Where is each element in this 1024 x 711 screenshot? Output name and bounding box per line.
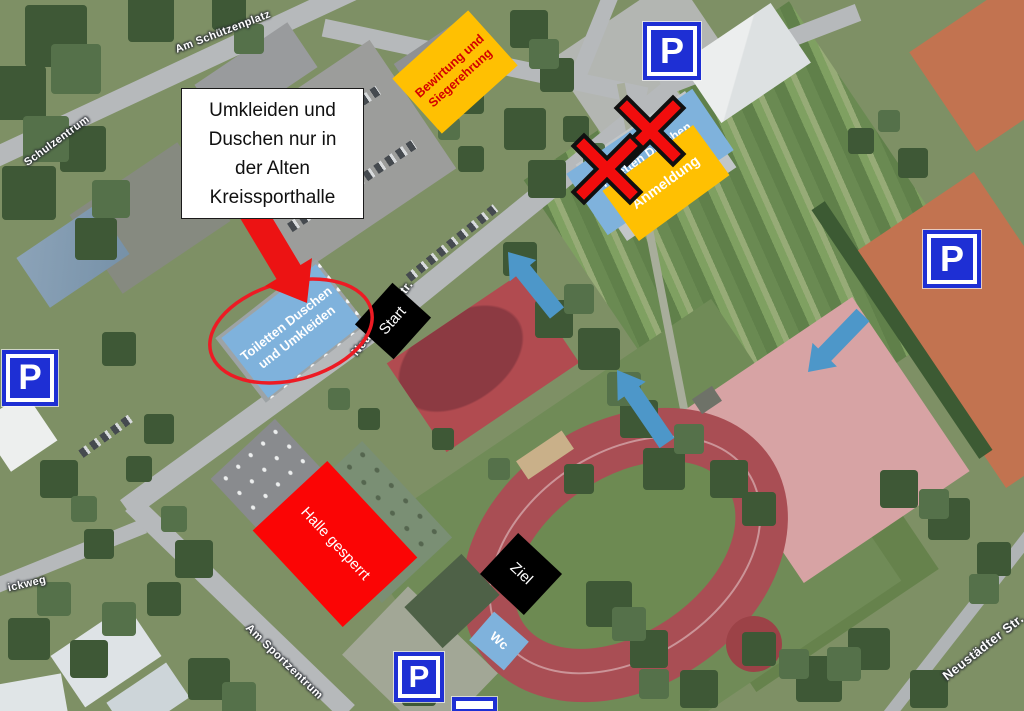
marker-toiletten-old-hall: Toiletten Duschen und Umkleiden bbox=[221, 264, 362, 398]
callout-line: Kreissporthalle bbox=[210, 183, 336, 212]
trees-light-layer bbox=[0, 0, 2, 2]
callout-line: Umkleiden und bbox=[209, 96, 336, 125]
parking-letter: P bbox=[2, 350, 58, 406]
marker-line: Halle gesperrt bbox=[296, 503, 374, 585]
parking-letter: P bbox=[394, 652, 444, 702]
callout-line: Duschen nur in bbox=[209, 125, 337, 154]
throwing-circle bbox=[726, 616, 782, 672]
parking-letter: P bbox=[643, 22, 701, 80]
marker-line: Start bbox=[375, 303, 411, 340]
parking-sign: P bbox=[923, 230, 981, 288]
parking-sign-partial bbox=[452, 697, 497, 711]
marker-line: Ziel bbox=[506, 559, 537, 590]
callout-umkleiden-hinweis: Umkleiden und Duschen nur in der Alten K… bbox=[181, 88, 364, 219]
parking-letter: P bbox=[923, 230, 981, 288]
parking-sign: P bbox=[2, 350, 58, 406]
street-label-am-sportzentrum: Am Sportzentrum bbox=[243, 622, 325, 702]
parked-cars-row bbox=[78, 414, 133, 458]
building-corner-white bbox=[0, 673, 68, 711]
marker-line: Wc bbox=[486, 628, 512, 654]
tennis-courts-topright bbox=[909, 0, 1024, 152]
parking-sign: P bbox=[394, 652, 444, 702]
event-map: Am Schützenplatz Schulzentrum Neustädter… bbox=[0, 0, 1024, 711]
callout-line: der Alten bbox=[235, 154, 310, 183]
parking-sign: P bbox=[643, 22, 701, 80]
